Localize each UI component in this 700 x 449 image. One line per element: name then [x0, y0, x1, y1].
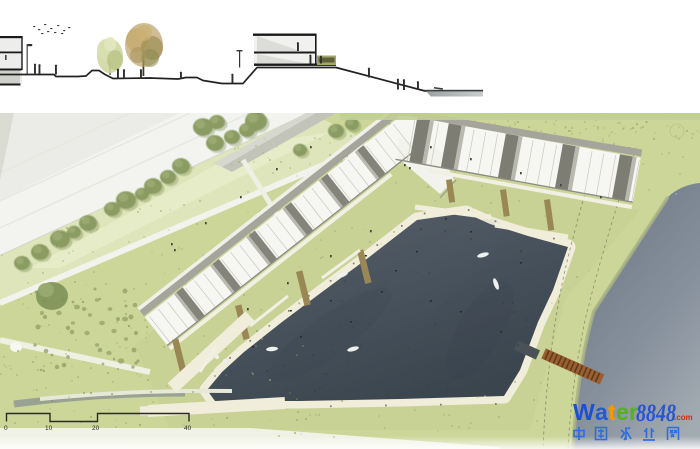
svg-text:a: a [595, 399, 608, 425]
svg-text:8848: 8848 [636, 400, 676, 427]
svg-text:t: t [608, 399, 616, 425]
svg-text:0: 0 [4, 425, 8, 432]
svg-text:10: 10 [45, 425, 53, 432]
svg-text:e: e [616, 399, 629, 425]
svg-text:.com: .com [674, 413, 693, 422]
svg-text:20: 20 [92, 425, 100, 432]
svg-text:W: W [573, 399, 595, 425]
svg-text:40: 40 [184, 425, 192, 432]
